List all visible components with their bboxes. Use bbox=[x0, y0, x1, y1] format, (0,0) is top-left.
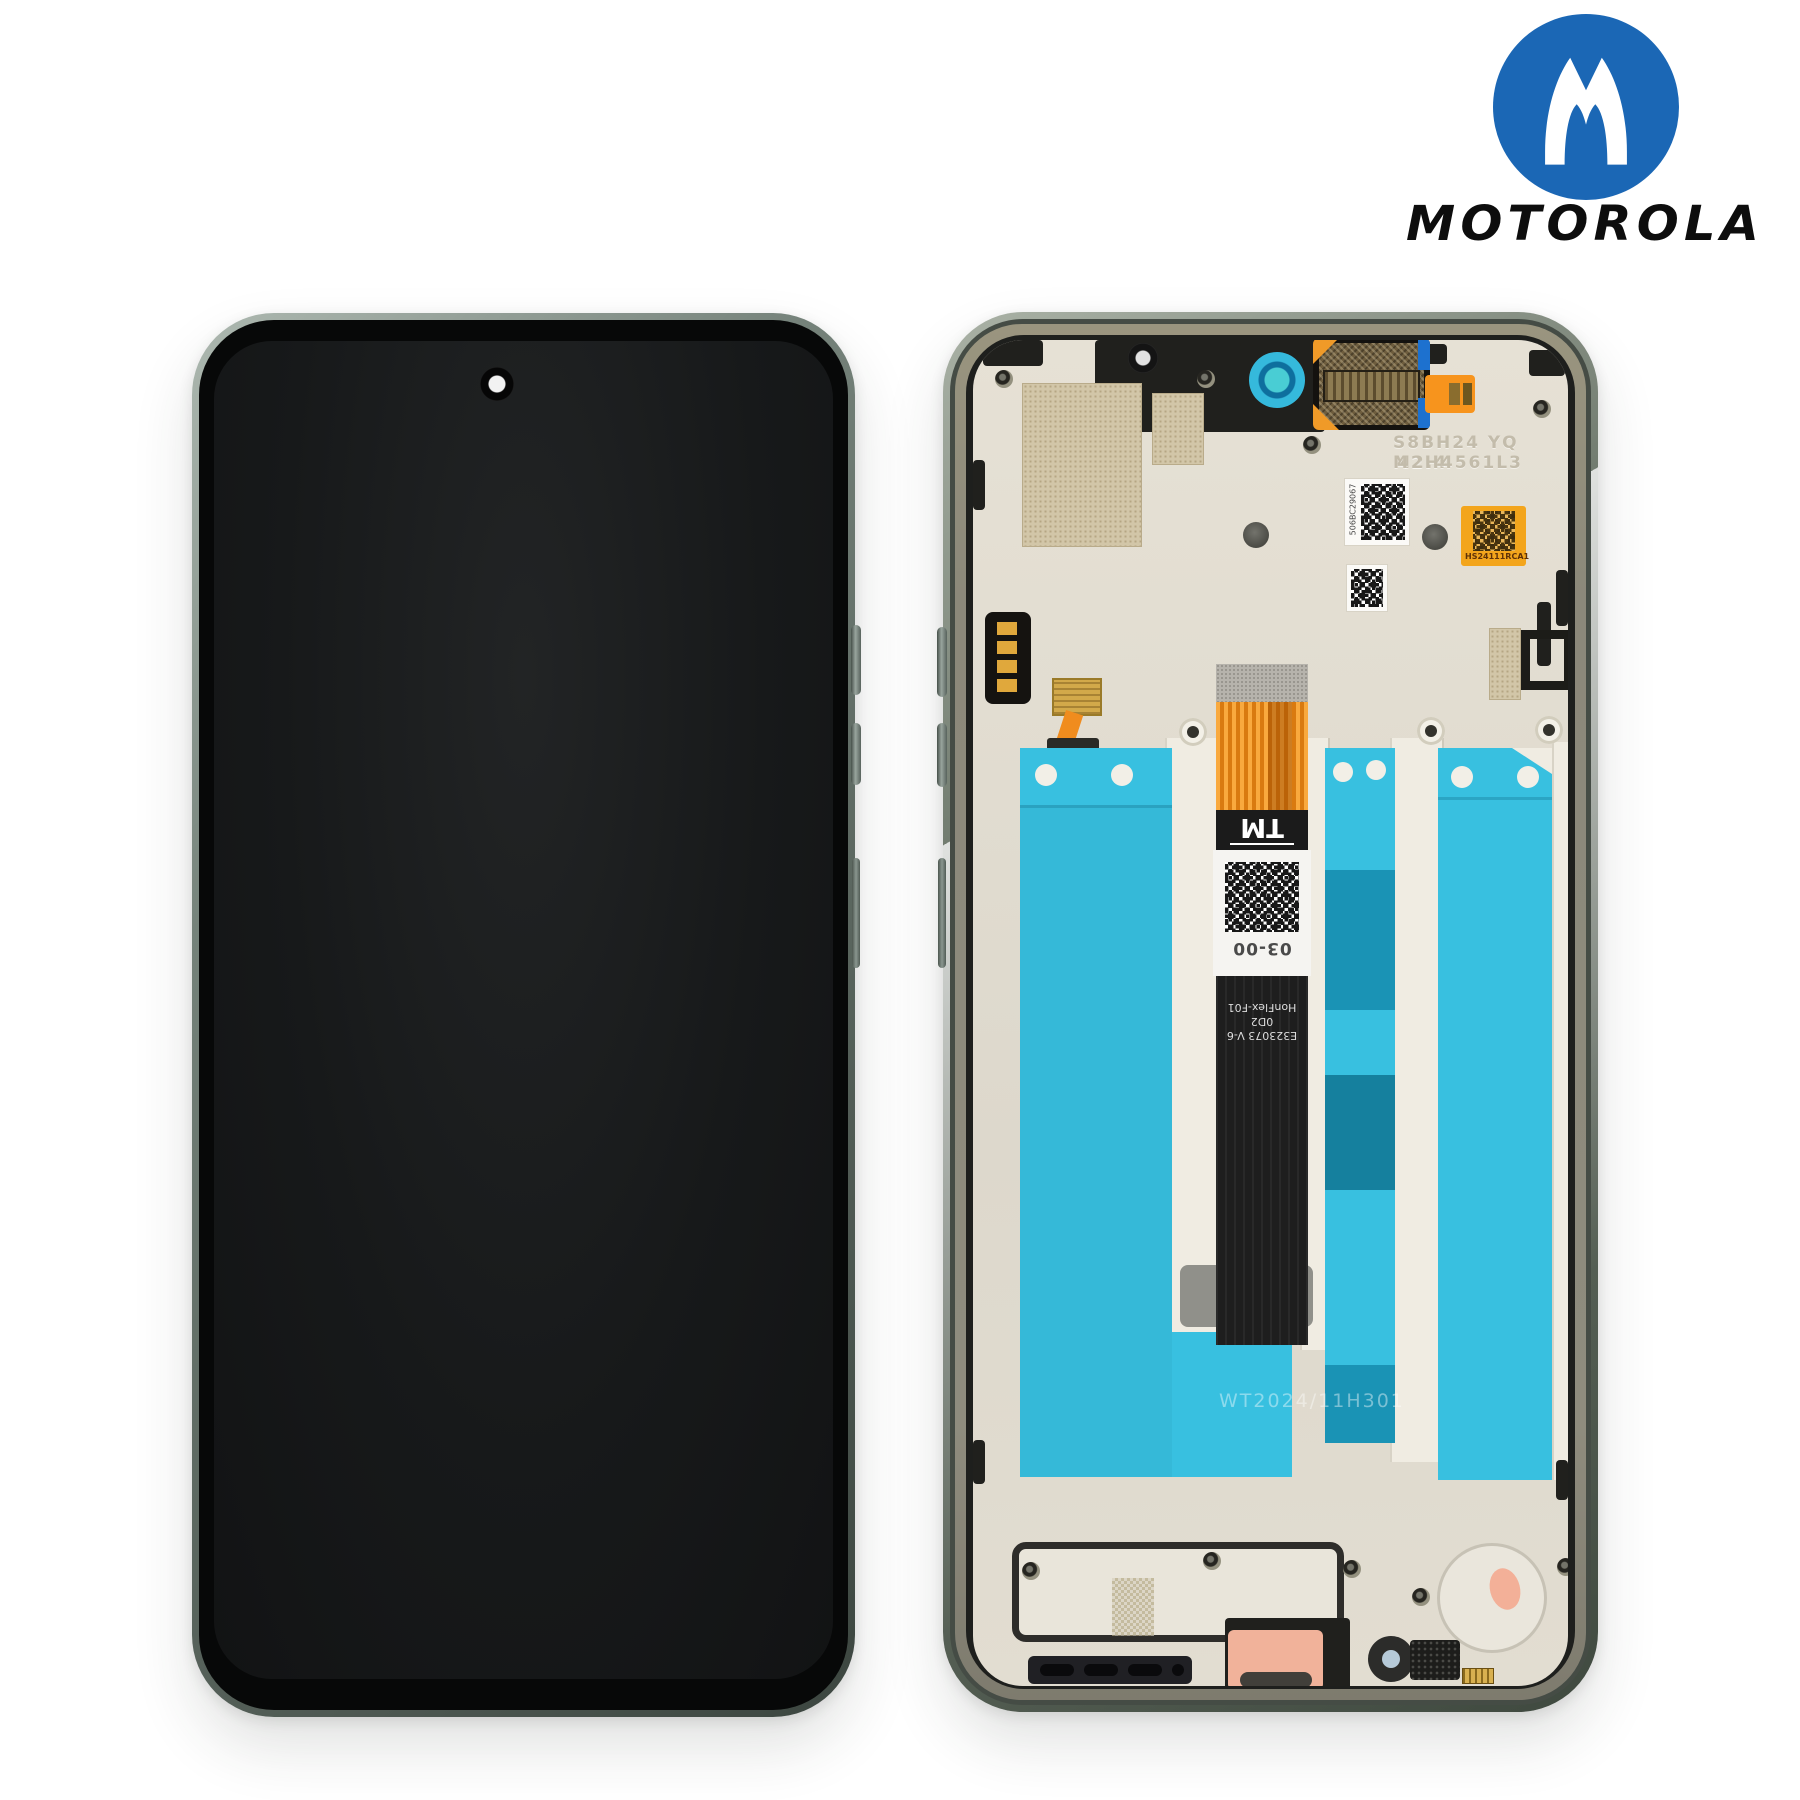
screw-boss bbox=[1535, 716, 1563, 744]
qr-label-code: 506BC29067 bbox=[1348, 484, 1357, 536]
gold-pad bbox=[997, 660, 1017, 673]
earpiece-blue-strip bbox=[1418, 340, 1430, 370]
screw-hole bbox=[1557, 1558, 1568, 1576]
qr-label-orange: HS24111RCA1 bbox=[1461, 506, 1526, 566]
gold-spring-contact bbox=[1462, 1668, 1494, 1684]
plastic-rib bbox=[1390, 738, 1444, 1462]
mic-port-dot bbox=[1243, 522, 1269, 548]
screw-hole bbox=[1203, 1552, 1221, 1570]
screw-hole bbox=[995, 370, 1013, 388]
flex-small-codes: E323073 V-6 0D2 HonFlex-F01 bbox=[1216, 1000, 1308, 1042]
volume-button bbox=[851, 625, 861, 695]
earpiece-flex-tab bbox=[1425, 375, 1475, 413]
film-hole bbox=[1517, 766, 1539, 788]
flex-pad bbox=[1463, 383, 1472, 405]
loudspeaker-grille bbox=[1028, 1656, 1192, 1684]
camera-teal-gasket-icon bbox=[1249, 352, 1305, 408]
qr-code-icon bbox=[1351, 569, 1383, 607]
back-inner-plastic: S8BH24 YQ M2.4 42H4561L3 506BC29067 HS24… bbox=[973, 340, 1568, 1686]
gasket-bit bbox=[1556, 1460, 1568, 1500]
motorola-wordmark: MOTOROLA bbox=[1374, 196, 1796, 252]
mesh-patch-right bbox=[1489, 628, 1521, 700]
back-frame: S8BH24 YQ M2.4 42H4561L3 506BC29067 HS24… bbox=[943, 312, 1598, 1712]
screw-hole bbox=[1197, 370, 1215, 388]
film-dark-segment bbox=[1325, 870, 1395, 1010]
screw-hole bbox=[1022, 1562, 1040, 1580]
film-hole bbox=[1035, 764, 1057, 786]
mic-membrane-dot bbox=[1382, 1650, 1400, 1668]
flex-mirrored-code: 03-00 bbox=[1213, 938, 1311, 958]
tm-label: TM bbox=[1216, 812, 1308, 842]
flex-black-ribbon: E323073 V-6 0D2 HonFlex-F01 1540486|670 … bbox=[1216, 976, 1308, 1345]
adhesive-film-right bbox=[1438, 748, 1552, 1480]
flex-code-line1: E323073 V-6 0D2 bbox=[1227, 1015, 1297, 1042]
bottom-mic-ring bbox=[1368, 1636, 1414, 1682]
gold-contact-block bbox=[985, 612, 1031, 704]
flex-dark-column bbox=[1268, 702, 1292, 810]
qr-code-icon bbox=[1225, 862, 1299, 932]
plastic-rib bbox=[1165, 738, 1222, 1338]
gasket-bit bbox=[1529, 350, 1565, 376]
adhesive-film-left bbox=[1020, 748, 1172, 1477]
volume-button-back bbox=[937, 627, 947, 697]
screw-boss bbox=[1417, 717, 1445, 745]
qr-label-white: 506BC29067 bbox=[1345, 479, 1409, 545]
qr-code-icon bbox=[1361, 484, 1405, 540]
jack-bracket-c bbox=[1521, 630, 1568, 690]
earpiece-contact-band bbox=[1323, 370, 1420, 402]
power-button bbox=[851, 723, 861, 785]
screw-hole bbox=[1412, 1588, 1430, 1606]
screw-hole bbox=[1343, 1560, 1361, 1578]
product-photo-canvas: MOTOROLA bbox=[0, 0, 1800, 1800]
fabric-shield-patch-small bbox=[1152, 393, 1204, 465]
front-panel bbox=[192, 313, 855, 1717]
batwing-m-icon bbox=[1493, 14, 1679, 200]
film-hole bbox=[1451, 766, 1473, 788]
etched-code-line2: 42H4561L3 bbox=[1397, 453, 1523, 473]
punch-hole-camera-icon bbox=[480, 367, 514, 401]
adhesive-film-middle bbox=[1325, 748, 1395, 1443]
fabric-shield-patch-large bbox=[1022, 383, 1142, 547]
grille-slot bbox=[1084, 1664, 1118, 1676]
screw-hole bbox=[1533, 400, 1551, 418]
speckled-housing bbox=[1410, 1640, 1460, 1680]
flex-code-line2: HonFlex-F01 bbox=[1228, 1001, 1297, 1014]
frame-antenna-segment bbox=[852, 858, 860, 968]
film-fold-line bbox=[1438, 797, 1552, 800]
gold-pad bbox=[997, 679, 1017, 692]
grille-slot bbox=[1128, 1664, 1162, 1676]
gold-pad bbox=[997, 622, 1017, 635]
gasket-bit bbox=[983, 340, 1043, 366]
etched-qr-code-icon bbox=[1112, 1578, 1154, 1636]
qr-label-white-small bbox=[1347, 565, 1387, 611]
gold-pad bbox=[997, 641, 1017, 654]
qr-code-icon bbox=[1473, 511, 1515, 551]
sensor-gold-pad bbox=[1052, 678, 1102, 716]
grille-slot bbox=[1172, 1664, 1184, 1676]
tm-underline bbox=[1230, 843, 1294, 845]
front-camera-opening-icon bbox=[1128, 343, 1158, 373]
grille-slot bbox=[1040, 1664, 1074, 1676]
mic-port-dot bbox=[1422, 524, 1448, 550]
watermark-text: WT2024/11H301 bbox=[1219, 1390, 1405, 1412]
usb-port-cover bbox=[1228, 1630, 1323, 1686]
front-screen-off bbox=[214, 341, 833, 1679]
film-hole bbox=[1366, 760, 1386, 780]
flex-pad bbox=[1449, 383, 1460, 405]
film-hole bbox=[1333, 762, 1353, 782]
screw-hole bbox=[1303, 436, 1321, 454]
usb-c-port-icon bbox=[1240, 1672, 1312, 1686]
power-button-back bbox=[937, 723, 947, 787]
orange-label-code: HS24111RCA1 bbox=[1465, 552, 1529, 561]
flex-gray-tape bbox=[1216, 664, 1308, 702]
gasket-bit bbox=[973, 1440, 985, 1484]
plastic-rib bbox=[1552, 742, 1568, 1480]
screw-boss bbox=[1179, 718, 1207, 746]
film-hole bbox=[1111, 764, 1133, 786]
gasket-bit bbox=[973, 460, 985, 510]
flex-orange-ribbon bbox=[1216, 702, 1308, 810]
gasket-bit bbox=[1556, 570, 1568, 626]
film-lower-tint bbox=[1020, 808, 1172, 1477]
earpiece-speaker bbox=[1313, 340, 1430, 430]
film-dark-segment bbox=[1325, 1075, 1395, 1190]
flex-tm-band: TM bbox=[1216, 810, 1308, 850]
frame-antenna-segment-back bbox=[938, 858, 946, 968]
flex-white-label: 03-00 bbox=[1213, 850, 1311, 976]
